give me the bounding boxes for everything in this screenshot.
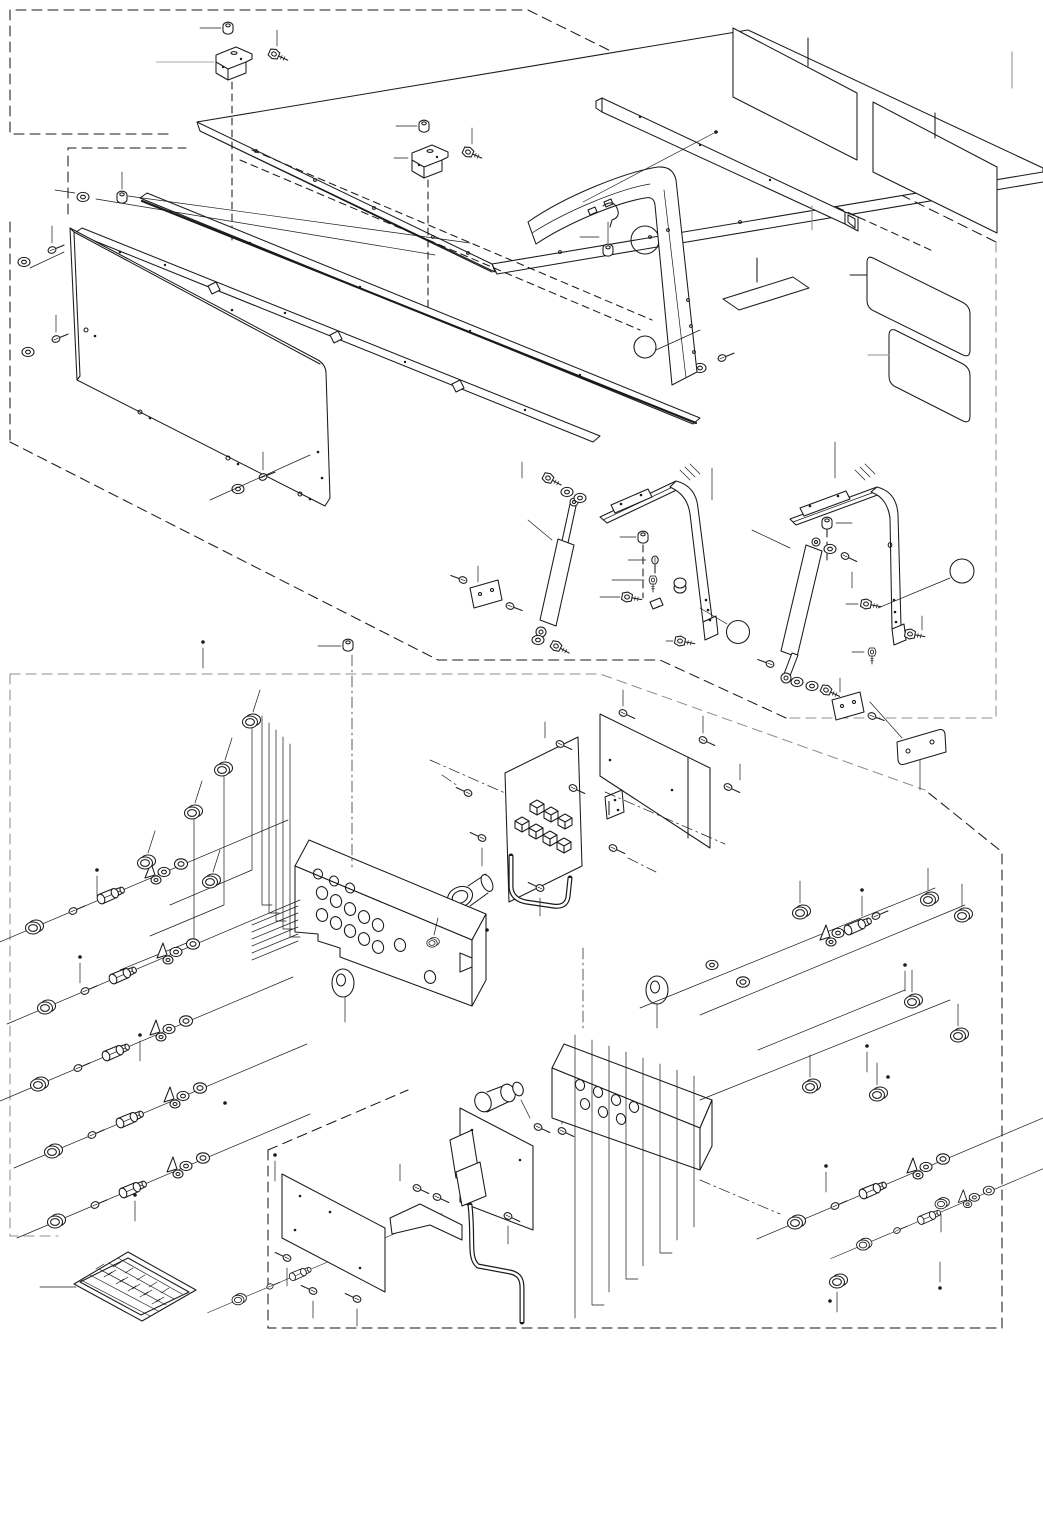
tube-end: [845, 212, 858, 231]
cap-nut: [603, 244, 613, 256]
washer: [561, 487, 573, 496]
screw: [432, 1192, 450, 1205]
cap-nut: [223, 22, 233, 34]
relay: [543, 831, 557, 846]
harness-step-lines: [120, 716, 300, 970]
cover-panel: [600, 714, 710, 848]
u-bracket: [605, 790, 624, 819]
clip-bracket: [390, 1204, 462, 1240]
screw: [723, 782, 741, 795]
screw: [274, 1250, 292, 1263]
bolt: [51, 331, 69, 343]
switch-row: [0, 820, 288, 944]
bolt: [860, 598, 881, 611]
blank-decal-5: [723, 277, 809, 310]
clamp: [650, 598, 663, 609]
roof-bracket-1: [216, 47, 252, 80]
screw: [698, 735, 716, 748]
power-socket: [472, 1081, 530, 1118]
foot-bracket: [832, 692, 864, 720]
grommet-right: [646, 976, 668, 1028]
flange-bolt: [267, 47, 289, 64]
strut-body: [781, 545, 822, 657]
washer: [77, 192, 89, 201]
bolt: [621, 591, 642, 604]
screw: [840, 551, 858, 564]
foot-bracket: [470, 580, 502, 608]
side-panel: [70, 228, 330, 506]
gas-strut-right-assembly: [752, 442, 974, 723]
callout-balloon-2: [950, 559, 974, 583]
screw: [557, 1126, 575, 1139]
relay: [530, 800, 544, 815]
washer: [791, 677, 803, 686]
bushing: [674, 578, 686, 593]
washer: [574, 493, 586, 502]
small-mount-plate: [870, 702, 946, 790]
grommet-left: [332, 969, 354, 1022]
cap-nut: [419, 120, 429, 132]
set-screw: [652, 556, 658, 573]
relay: [557, 838, 571, 853]
strut-body: [540, 539, 574, 626]
relay: [515, 817, 529, 832]
gas-strut-left-assembly: [450, 462, 750, 657]
switch-row: [7, 900, 300, 1024]
screw: [469, 830, 487, 843]
strut-eye: [781, 673, 791, 683]
nut: [649, 576, 657, 592]
hatch-marks: [680, 464, 700, 480]
exploded-parts-diagram: [0, 0, 1043, 1536]
mount-plate-1: [282, 1174, 385, 1292]
spec-table-decal: [40, 1252, 196, 1321]
screw: [450, 573, 468, 585]
switch-cluster-upper-right: [640, 868, 973, 1015]
blank-decal-3: [867, 257, 970, 356]
washer: [806, 681, 818, 690]
washer: [18, 257, 30, 266]
screw: [300, 1283, 318, 1296]
screw: [717, 350, 735, 362]
relay: [529, 824, 543, 839]
switch-row: [14, 1044, 307, 1168]
relay: [544, 807, 558, 822]
switch-row: [17, 1114, 310, 1238]
bolt: [674, 635, 695, 648]
washer: [22, 347, 34, 356]
screw: [867, 712, 885, 724]
blank-caps-right: [700, 970, 969, 1312]
frame-hole: [634, 336, 656, 358]
long-screw: [608, 843, 626, 856]
screw: [533, 1122, 551, 1135]
screw: [618, 708, 636, 721]
washer: [532, 635, 544, 644]
cap-nut: [822, 517, 832, 529]
cable-plug-assembly: [274, 1106, 575, 1326]
switch-row: [757, 1115, 1043, 1239]
nut: [868, 648, 876, 664]
bolt: [904, 628, 925, 641]
bolt: [757, 657, 775, 669]
hatch-marks: [855, 464, 875, 480]
screw: [455, 785, 473, 798]
bolt: [541, 471, 563, 489]
washer: [824, 544, 836, 553]
cap-nut: [343, 639, 353, 651]
nut: [117, 191, 127, 203]
curved-leg: [871, 487, 901, 629]
screw: [344, 1291, 362, 1304]
callout-balloon-1: [727, 621, 750, 644]
screw: [505, 602, 523, 614]
switch-row: [0, 977, 293, 1101]
strut-rod: [562, 504, 576, 543]
relay: [558, 814, 572, 829]
bolt: [549, 639, 571, 657]
screw: [412, 1183, 430, 1196]
plate-two-holes: [897, 730, 946, 765]
relay-box-assembly: [430, 690, 741, 938]
cap-nut: [638, 531, 648, 543]
parts-diagram-sheet: [0, 0, 1043, 1536]
